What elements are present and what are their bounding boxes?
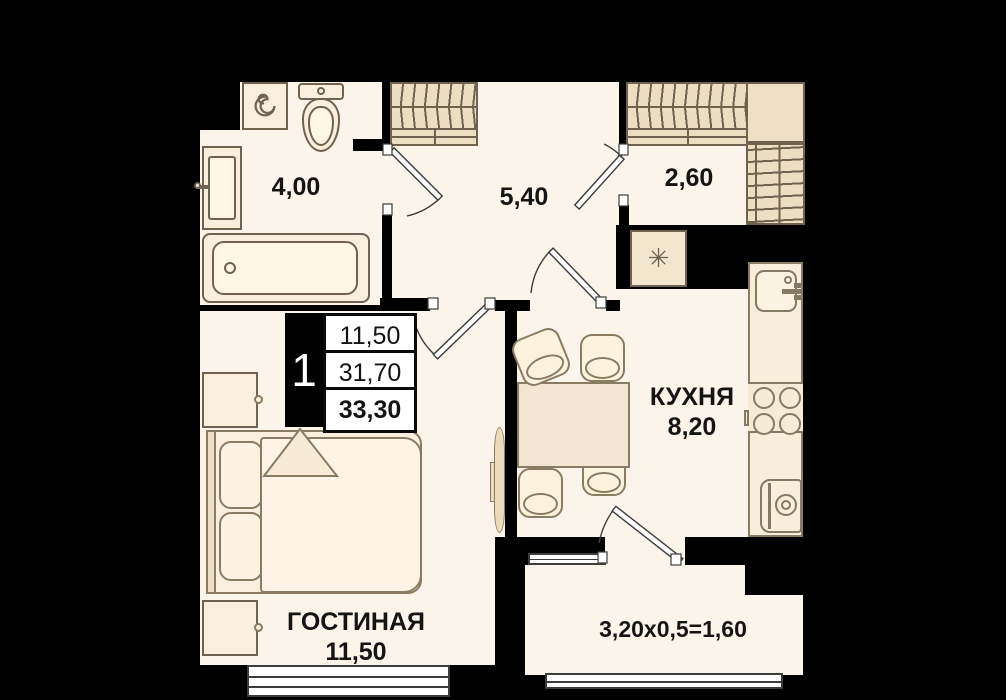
wall (505, 303, 517, 539)
bed-pillow (219, 441, 263, 509)
kitchen-faucet-icon (782, 289, 802, 294)
balcony-dimensions-label: 3,20х0,5=1,60 (599, 614, 747, 644)
wardrobe-area-label: 2,60 (665, 163, 714, 193)
closet-corner-cabinet (746, 82, 805, 143)
appliance-door (781, 500, 791, 510)
living-room-window (247, 665, 450, 697)
wardrobe-door-threshold (617, 146, 629, 206)
washing-machine-drum-icon (250, 91, 280, 121)
balcony-door-threshold (605, 537, 685, 567)
living-room-area: 11,50 (287, 637, 425, 667)
wardrobe-rail (628, 128, 746, 144)
closet-shelves (746, 143, 805, 225)
kitchen-faucet-icon (794, 295, 801, 300)
nightstand-knob (254, 395, 263, 404)
faucet-icon (194, 182, 201, 189)
unit-area-total: 33,30 (323, 387, 417, 433)
toilet-button (317, 87, 325, 95)
nightstand-knob (254, 623, 263, 632)
kitchen-area: 8,20 (650, 412, 734, 442)
hallway-area-label: 5,40 (500, 182, 549, 212)
stove-handle (744, 410, 749, 426)
kitchen-balcony-window (528, 553, 606, 565)
kitchen-name: КУХНЯ (650, 382, 734, 412)
wall (380, 298, 430, 311)
hallway-wardrobe (390, 82, 478, 146)
balcony-window (545, 673, 783, 689)
bathroom-area-label: 4,00 (272, 172, 321, 202)
wardrobe-rail (392, 128, 476, 144)
wall (745, 565, 803, 595)
kitchen-chair (518, 468, 563, 518)
wall (606, 300, 620, 311)
stove-burner (779, 413, 801, 435)
tv (494, 427, 505, 533)
nightstand (202, 372, 258, 428)
wall (382, 215, 392, 311)
bathtub-drain (224, 262, 236, 274)
ventilation-icon: ✳ (630, 230, 687, 287)
stove-burner (779, 387, 801, 409)
kitchen-label: КУХНЯ 8,20 (650, 382, 734, 442)
bed-pillow (219, 512, 263, 581)
kitchen-chair (580, 334, 625, 382)
bed-headboard (206, 430, 216, 594)
living-room-name: ГОСТИНАЯ (287, 607, 425, 637)
washing-machine (242, 82, 288, 130)
kitchen-faucet-icon (794, 283, 801, 288)
wall (353, 139, 384, 151)
unit-rooms-count: 1 (285, 313, 323, 427)
bathroom-sink (208, 156, 236, 220)
stove-burner (753, 413, 775, 435)
stove-burner (753, 387, 775, 409)
closet-wardrobe-top (626, 82, 748, 146)
bed-blanket (260, 437, 422, 593)
floor-plan: ✳ (0, 0, 1006, 700)
appliance-door-line (768, 483, 771, 529)
kitchen-table (517, 382, 630, 468)
nightstand (202, 600, 258, 656)
living-room-label: ГОСТИНАЯ 11,50 (287, 607, 425, 667)
kitchen-sink-drain (784, 276, 792, 284)
